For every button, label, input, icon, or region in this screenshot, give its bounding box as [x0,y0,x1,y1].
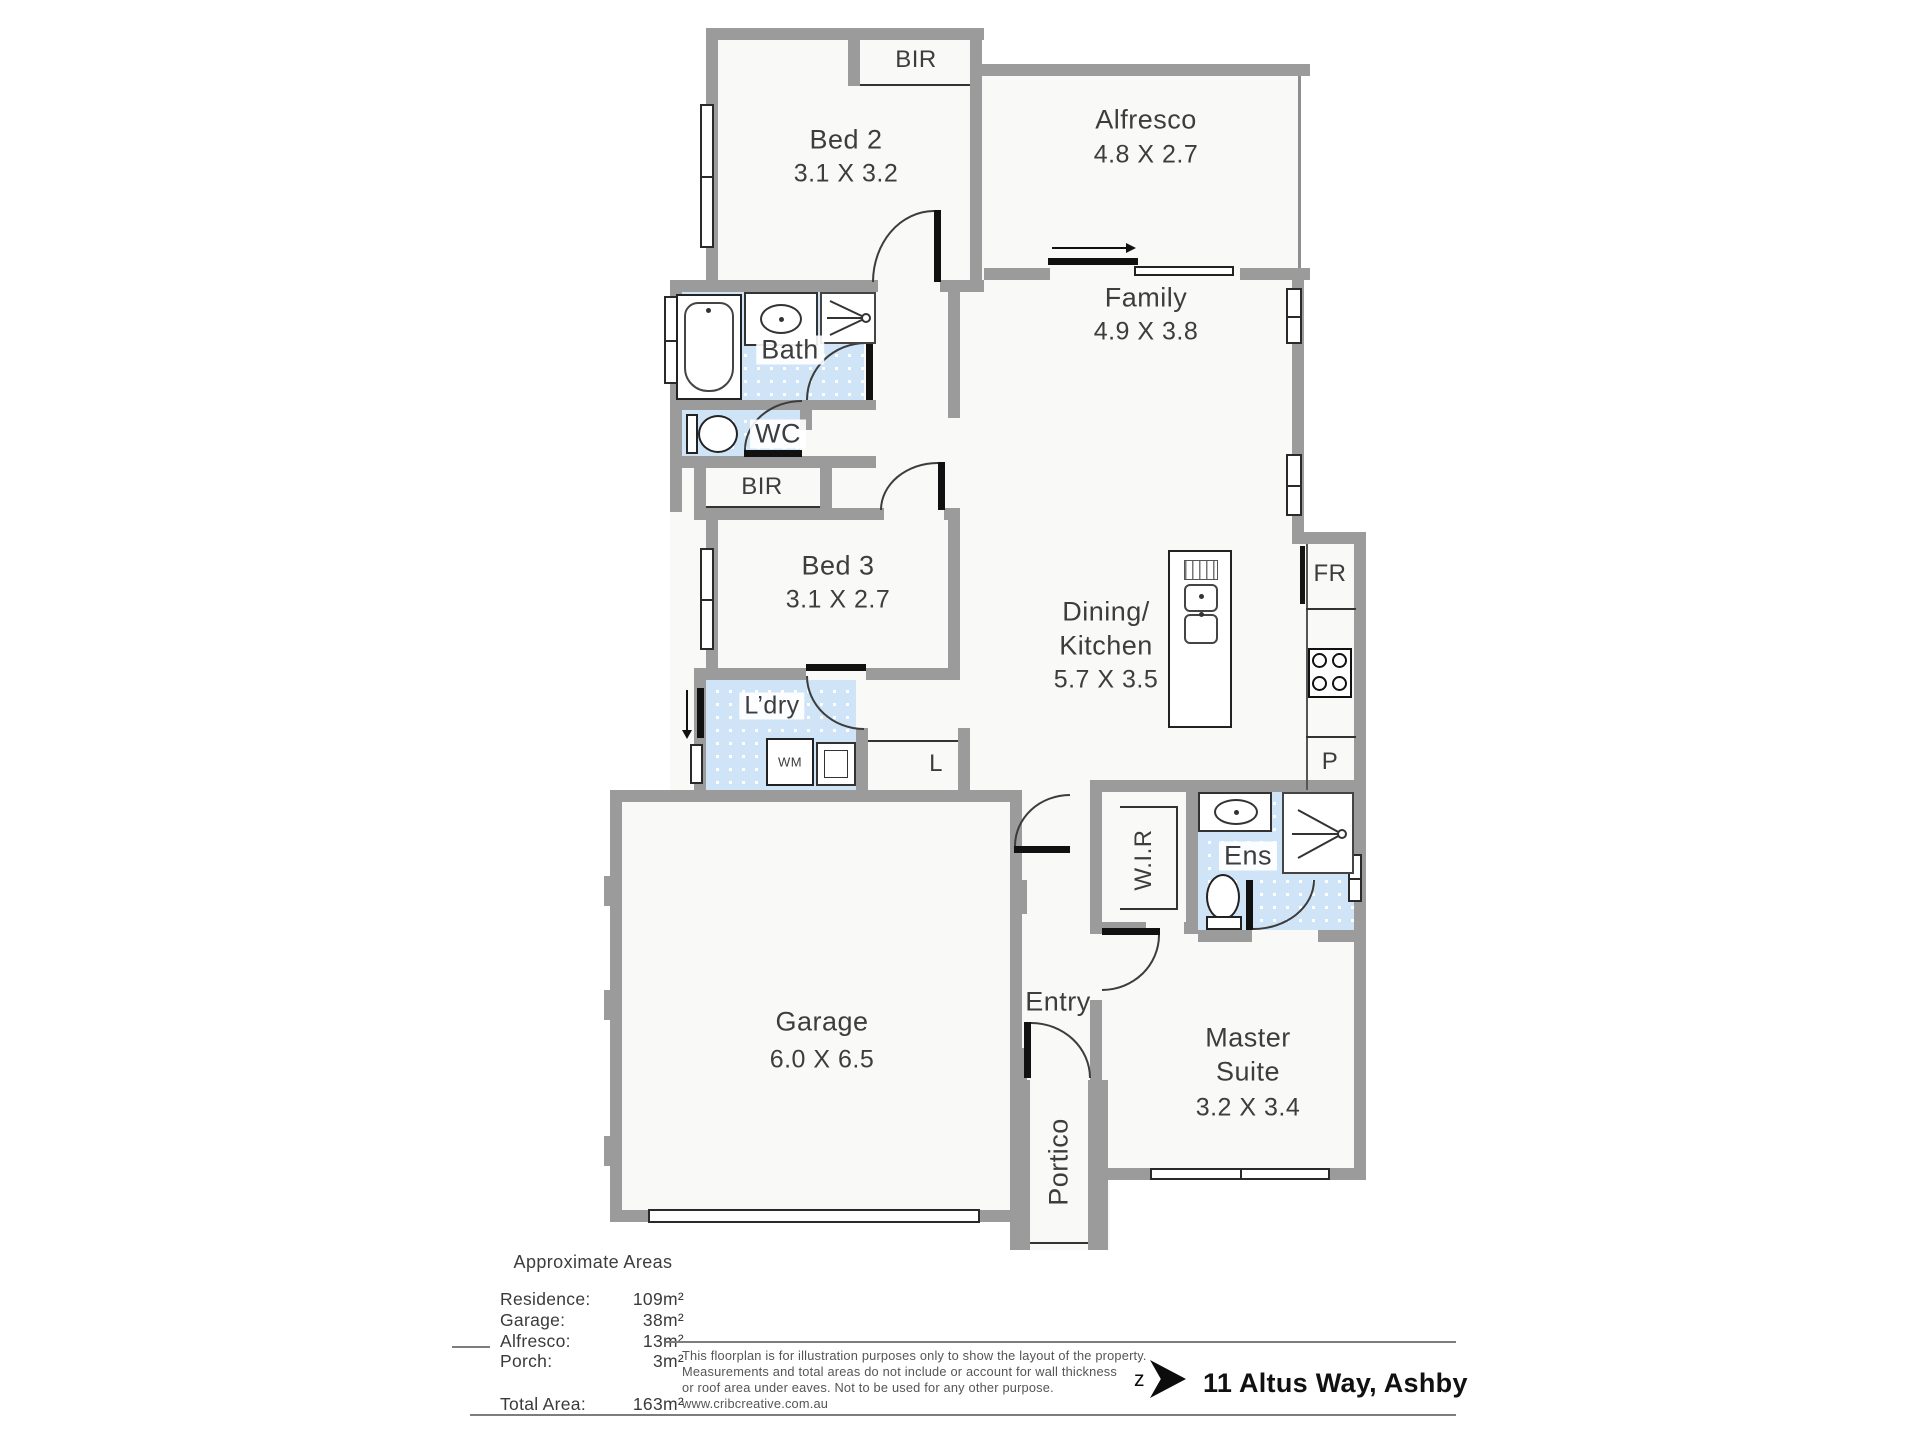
room-label-bed2: Bed 2 [809,127,882,154]
address-text: 11 Altus Way, Ashby [1203,1368,1468,1399]
wall [848,28,860,86]
wall [958,728,970,790]
areas-row-value: 3m² [653,1351,684,1372]
sink-drainer [1184,560,1218,580]
areas-row: Porch: 3m² [500,1351,684,1372]
wall [1354,792,1366,1180]
sink-tap [1199,594,1204,599]
areas-total-label: Total Area: [500,1394,586,1415]
bathtub-tap [706,308,711,313]
wall [610,790,1022,802]
room-dims-bed2: 3.1 X 3.2 [794,162,899,187]
divider-dash [452,1346,490,1348]
disclaimer-text: This floorplan is for illustration purpo… [682,1348,1152,1412]
sliding-door-panel [1134,266,1234,276]
room-dims-alfresco: 4.8 X 2.7 [1094,143,1199,168]
wall [1184,922,1198,934]
sink-tap [1199,612,1204,617]
sliding-door-leaf [1048,258,1138,265]
door-leaf [1014,846,1070,853]
label-washing-machine: WM [778,756,802,769]
room-label-laundry: L’dry [739,693,804,720]
door-leaf [934,210,941,282]
room-label-master-2: Suite [1216,1059,1280,1086]
door-leaf [744,450,802,457]
wall [970,64,1310,76]
areas-title: Approximate Areas [514,1253,673,1271]
bathtub-inner [684,302,734,392]
ensuite-toilet-bowl [1206,874,1240,920]
garage-door [648,1209,980,1223]
room-label-master-1: Master [1205,1025,1291,1052]
room-label-family: Family [1105,285,1188,312]
wc-toilet-bowl [698,415,738,453]
wall [1354,532,1366,792]
wall [1198,930,1252,942]
divider-bottom [470,1414,1456,1416]
shower-icon [822,294,874,342]
areas-row-value: 38m² [643,1310,684,1331]
wall [694,468,706,508]
cooktop-burner [1332,676,1347,691]
door-leaf [1024,1022,1031,1078]
wc-cistern [686,414,698,454]
room-label-dining-2: Kitchen [1059,633,1153,660]
wall [1090,792,1102,932]
entry-direction-arrowhead-icon [682,730,692,739]
shower-icon [1286,796,1350,870]
room-label-alfresco: Alfresco [1095,107,1197,134]
door-leaf [1102,928,1160,935]
areas-row-label: Residence: [500,1289,591,1310]
entry-direction-arrow-icon [686,690,688,730]
window [690,744,703,784]
room-fill [960,268,1304,804]
areas-total-row: Total Area: 163m² [500,1394,684,1415]
closet-label-linen: L [929,752,943,776]
room-dims-family: 4.9 X 3.8 [1094,320,1199,345]
room-label-dining-1: Dining/ [1062,599,1150,626]
room-label-garage: Garage [775,1009,868,1036]
wall [866,668,960,680]
wall [1010,1080,1030,1250]
ensuite-basin-drain [1234,810,1239,815]
window [1286,454,1302,516]
door-leaf [1246,880,1253,930]
wall [1090,1000,1102,1080]
wall [610,802,622,1210]
sink-basin [1184,614,1218,644]
window [1150,1168,1330,1180]
areas-row: Residence: 109m² [500,1289,684,1310]
areas-row: Garage: 38m² [500,1310,684,1331]
wall [948,292,960,418]
bath-basin-drain [779,317,784,322]
door-leaf [938,462,945,510]
window [1286,288,1302,344]
divider-top [666,1341,1456,1343]
disclaimer-line: www.cribcreative.com.au [682,1396,1152,1412]
pier [604,990,610,1020]
room-label-wir: W.I.R [1132,829,1156,890]
wall [1090,780,1366,792]
sliding-direction-arrowhead-icon [1126,243,1136,253]
closet-front [868,740,958,742]
cooktop-burner [1312,653,1327,668]
ensuite-cistern [1206,916,1242,930]
disclaimer-line: Measurements and total areas do not incl… [682,1364,1152,1380]
areas-row-label: Alfresco: [500,1331,571,1352]
areas-row-label: Porch: [500,1351,552,1372]
disclaimer-line: This floorplan is for illustration purpo… [682,1348,1152,1364]
areas-total-value: 163m² [633,1394,684,1415]
door-leaf [866,342,873,400]
wall [694,668,806,680]
room-label-wc: WC [750,420,806,449]
label-fridge-recess: FR [1314,562,1347,586]
room-label-portico: Portico [1046,1118,1073,1206]
room-label-entry: Entry [1025,989,1091,1016]
room-dims-dining: 5.7 X 3.5 [1054,668,1159,693]
room-label-bath: Bath [756,336,824,365]
room-dims-garage: 6.0 X 6.5 [770,1048,875,1073]
logo-letter: z [1134,1368,1145,1392]
closet-label-bir-bed2: BIR [895,48,937,72]
cooktop-burner [1312,676,1327,691]
room-dims-master: 3.2 X 3.4 [1196,1096,1301,1121]
door-leaf [697,688,704,738]
wall [944,508,960,520]
portico-edge [1030,1242,1088,1244]
pantry-divider [1306,736,1356,738]
disclaimer-line: or roof area under eaves. Not to be used… [682,1380,1152,1396]
wall [670,456,876,468]
logo-arrow-icon [1150,1360,1186,1398]
wall [856,728,868,790]
areas-row: Alfresco: 13m² [500,1331,684,1352]
pier [604,876,610,906]
window [700,104,714,248]
wall [694,508,884,520]
room-label-ensuite: Ens [1219,842,1277,871]
room-dims-bed3: 3.1 X 2.7 [786,588,891,613]
wall [1240,268,1310,280]
pier [1022,880,1027,914]
pier [604,1136,610,1166]
label-pantry: P [1322,750,1339,774]
closet-front [860,84,970,86]
room-label-bed3: Bed 3 [801,553,874,580]
window [700,548,714,650]
closet-label-bir-bed3: BIR [741,475,783,499]
laundry-trough-basin [824,750,848,778]
wall [1186,792,1198,930]
sliding-direction-arrow-icon [1052,247,1126,249]
cooktop-burner [1332,653,1347,668]
fridge-divider [1306,608,1356,610]
door-leaf [806,664,866,671]
areas-row-value: 109m² [633,1289,684,1310]
closet-front [706,506,820,508]
fridge-recess-mark [1300,546,1305,604]
wall [984,268,1050,280]
areas-row-label: Garage: [500,1310,565,1331]
alfresco-edge [1298,76,1301,280]
floorplan-canvas: Bed 2 3.1 X 3.2 Alfresco 4.8 X 2.7 Famil… [0,0,1920,1440]
wall [948,520,960,668]
wall [706,28,984,40]
wall [1088,1080,1108,1250]
